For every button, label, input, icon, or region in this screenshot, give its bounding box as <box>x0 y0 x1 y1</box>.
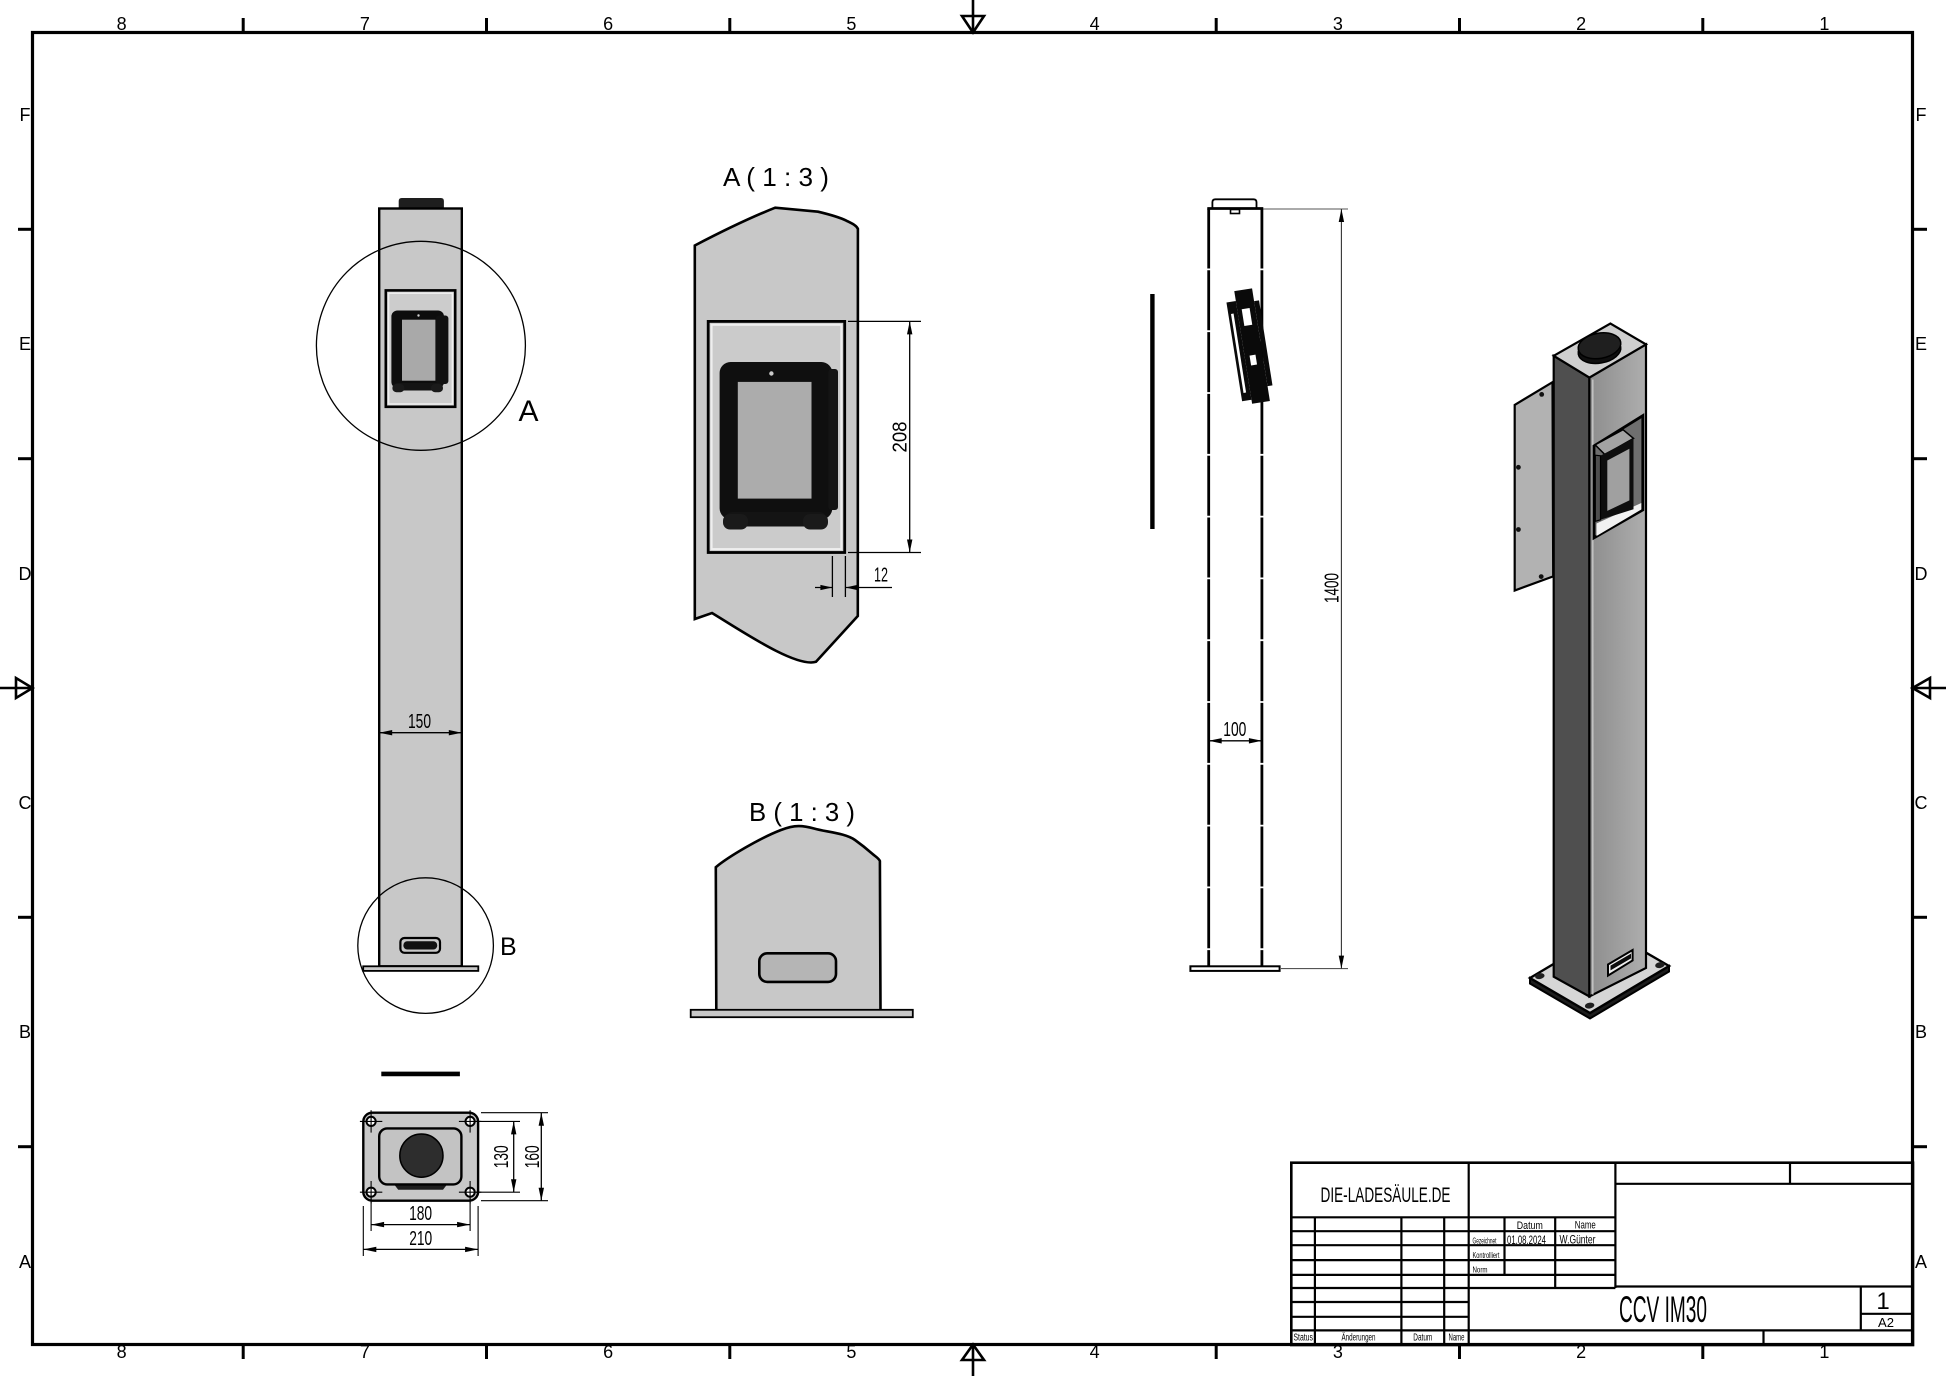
svg-text:W.Günter: W.Günter <box>1560 1235 1596 1247</box>
svg-text:160: 160 <box>522 1145 544 1168</box>
svg-text:Datum: Datum <box>1517 1220 1543 1232</box>
svg-text:180: 180 <box>409 1203 432 1225</box>
svg-text:Kontrolliert: Kontrolliert <box>1473 1250 1500 1260</box>
svg-text:6: 6 <box>603 14 613 34</box>
svg-text:Gezeichnet: Gezeichnet <box>1473 1236 1497 1246</box>
svg-text:E: E <box>19 334 31 354</box>
svg-text:1: 1 <box>1819 14 1829 34</box>
svg-text:8: 8 <box>117 14 127 34</box>
svg-text:Datum: Datum <box>1413 1332 1432 1343</box>
svg-text:Norm: Norm <box>1473 1264 1488 1274</box>
svg-text:B: B <box>1915 1022 1927 1042</box>
svg-text:A2: A2 <box>1878 1315 1894 1330</box>
svg-text:Status: Status <box>1293 1332 1313 1343</box>
svg-text:7: 7 <box>360 1342 370 1362</box>
svg-text:DIE-LADESÄULE.DE: DIE-LADESÄULE.DE <box>1321 1183 1451 1207</box>
svg-text:01.08.2024: 01.08.2024 <box>1507 1235 1546 1247</box>
svg-text:7: 7 <box>360 14 370 34</box>
svg-text:F: F <box>1916 105 1927 125</box>
svg-text:6: 6 <box>603 1342 613 1362</box>
svg-text:150: 150 <box>408 711 431 733</box>
svg-text:210: 210 <box>409 1228 432 1250</box>
svg-text:2: 2 <box>1576 14 1586 34</box>
svg-text:8: 8 <box>117 1342 127 1362</box>
svg-text:208: 208 <box>889 422 911 453</box>
svg-text:D: D <box>19 564 32 584</box>
svg-text:Änderungen: Änderungen <box>1342 1331 1376 1343</box>
svg-text:C: C <box>19 793 32 813</box>
svg-text:1: 1 <box>1876 1288 1889 1315</box>
svg-text:E: E <box>1915 334 1927 354</box>
svg-text:5: 5 <box>846 1342 856 1362</box>
svg-text:A ( 1 : 3 ): A ( 1 : 3 ) <box>723 162 829 192</box>
svg-text:130: 130 <box>491 1145 513 1168</box>
svg-text:5: 5 <box>846 14 856 34</box>
svg-text:A: A <box>1915 1252 1927 1272</box>
svg-text:Name: Name <box>1575 1219 1596 1231</box>
svg-text:4: 4 <box>1090 14 1100 34</box>
svg-text:CCV IM30: CCV IM30 <box>1619 1289 1707 1330</box>
svg-text:A: A <box>519 395 539 428</box>
svg-text:D: D <box>1915 564 1928 584</box>
svg-text:4: 4 <box>1090 1342 1100 1362</box>
svg-text:B ( 1 : 3 ): B ( 1 : 3 ) <box>749 797 855 827</box>
svg-text:1400: 1400 <box>1321 573 1343 603</box>
svg-text:3: 3 <box>1333 14 1343 34</box>
svg-text:Name: Name <box>1449 1332 1465 1343</box>
svg-text:C: C <box>1915 793 1928 813</box>
svg-text:B: B <box>19 1022 31 1042</box>
svg-text:12: 12 <box>874 565 888 587</box>
svg-text:B: B <box>500 933 517 961</box>
svg-text:A: A <box>19 1252 31 1272</box>
svg-text:100: 100 <box>1223 719 1246 741</box>
svg-text:F: F <box>20 105 31 125</box>
